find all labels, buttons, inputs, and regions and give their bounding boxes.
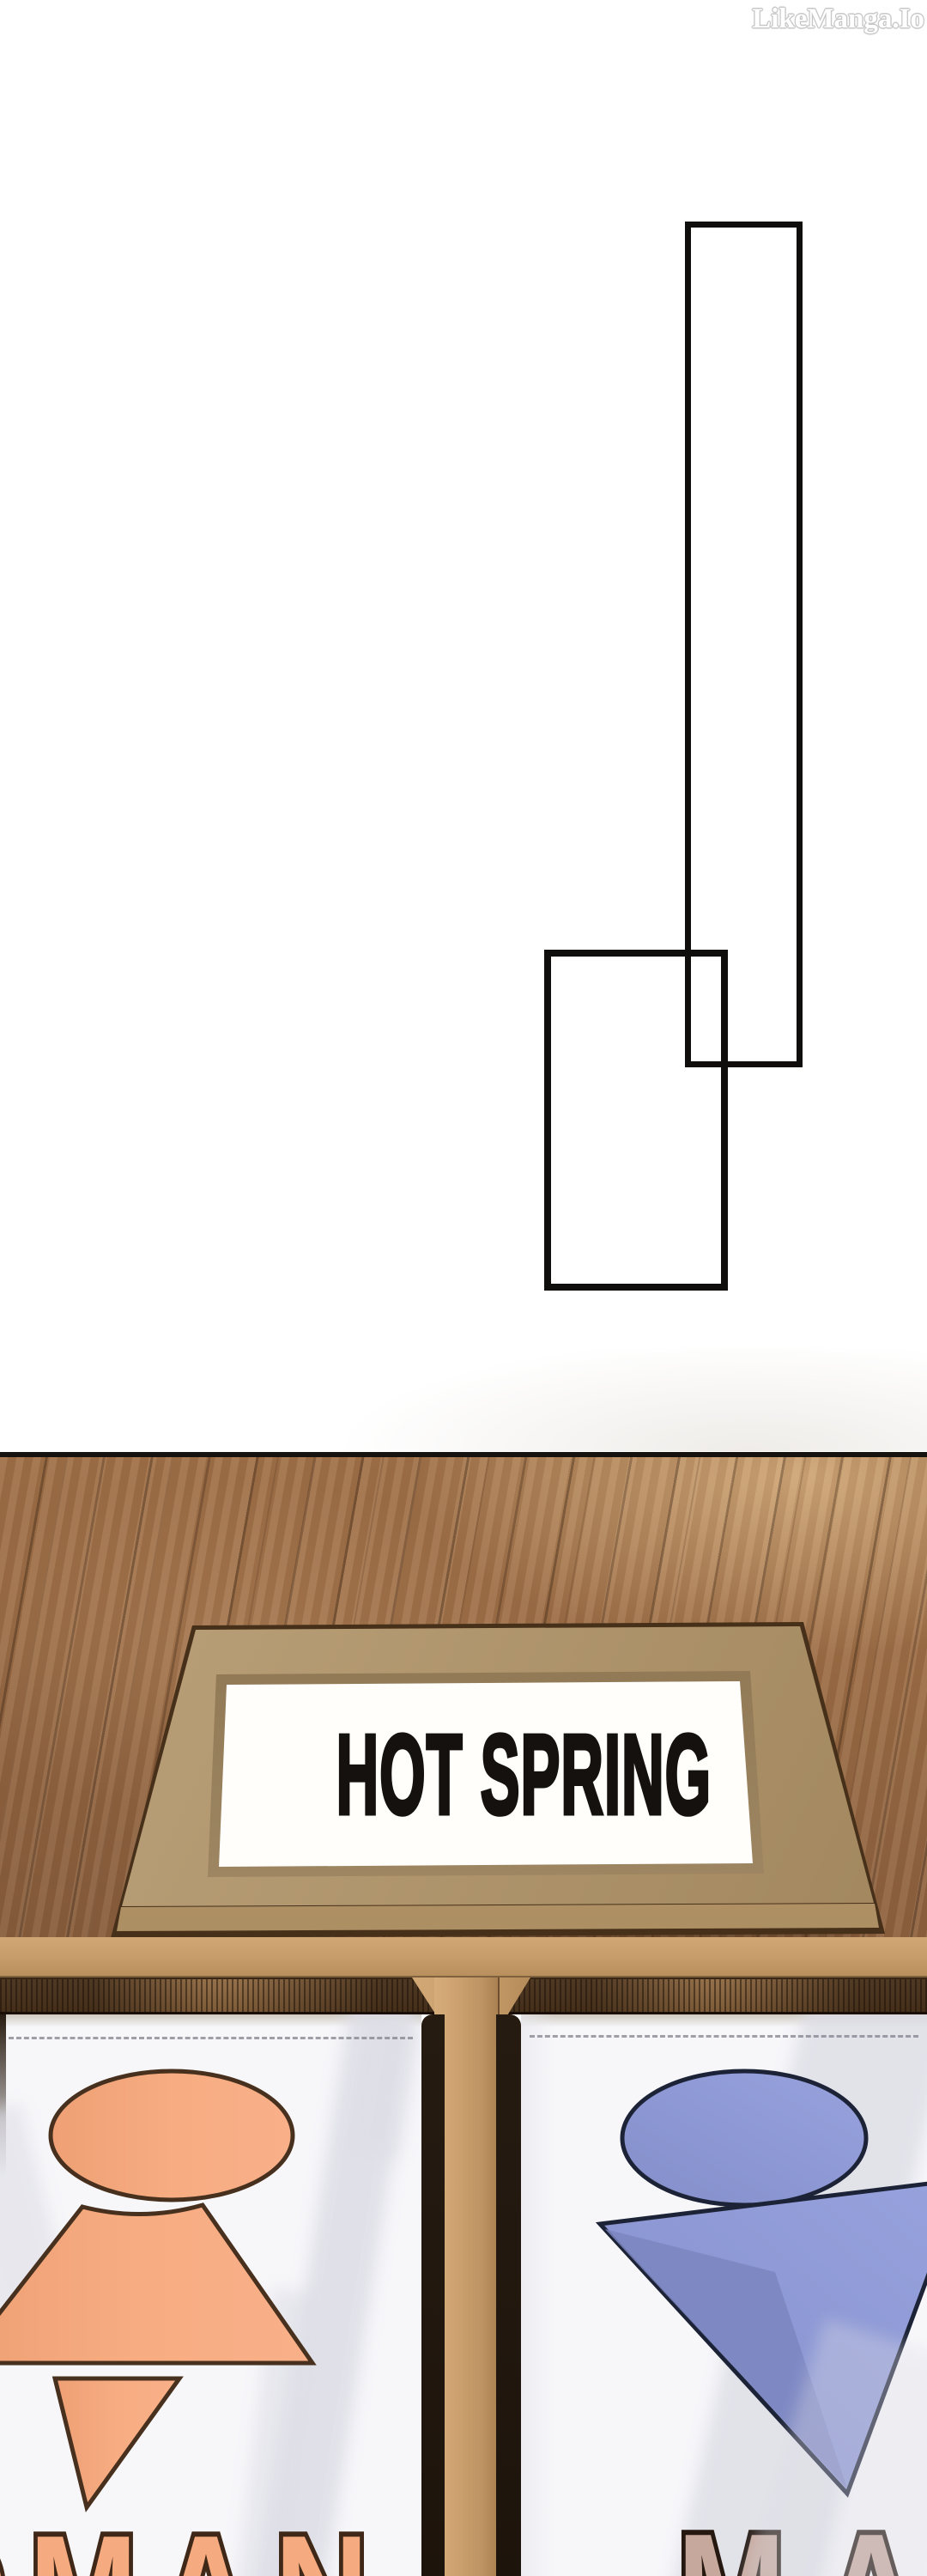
woman-symbol-body: [0, 2205, 312, 2363]
woman-symbol: WOMAN: [0, 2014, 421, 2576]
panel-outline-tall: [685, 222, 803, 1067]
woman-symbol-head: [51, 2071, 293, 2200]
woman-symbol-legs: [55, 2379, 179, 2507]
banner-left-word: WOMAN: [0, 2502, 390, 2576]
banner-right-edge: [496, 2014, 521, 2576]
door-beam: [0, 1937, 927, 1978]
wood-floor: [0, 1457, 927, 1937]
banner-right: MAN: [521, 2014, 927, 2576]
banner-left-edge: [421, 2014, 445, 2576]
watermark-text: LikeManga.Io: [740, 2, 924, 36]
door-lintel-right: [498, 1978, 927, 2014]
gray-smudge: [292, 1348, 927, 1451]
manga-page: LikeManga.Io HOT SPRING: [0, 0, 927, 2576]
man-symbol-head: [622, 2071, 866, 2205]
banner-left: WOMAN: [0, 2014, 421, 2576]
panel-outline-small: [544, 950, 728, 1291]
sign-text: HOT SPRING: [336, 1728, 645, 1822]
door-lintel-left: [0, 1978, 445, 2014]
